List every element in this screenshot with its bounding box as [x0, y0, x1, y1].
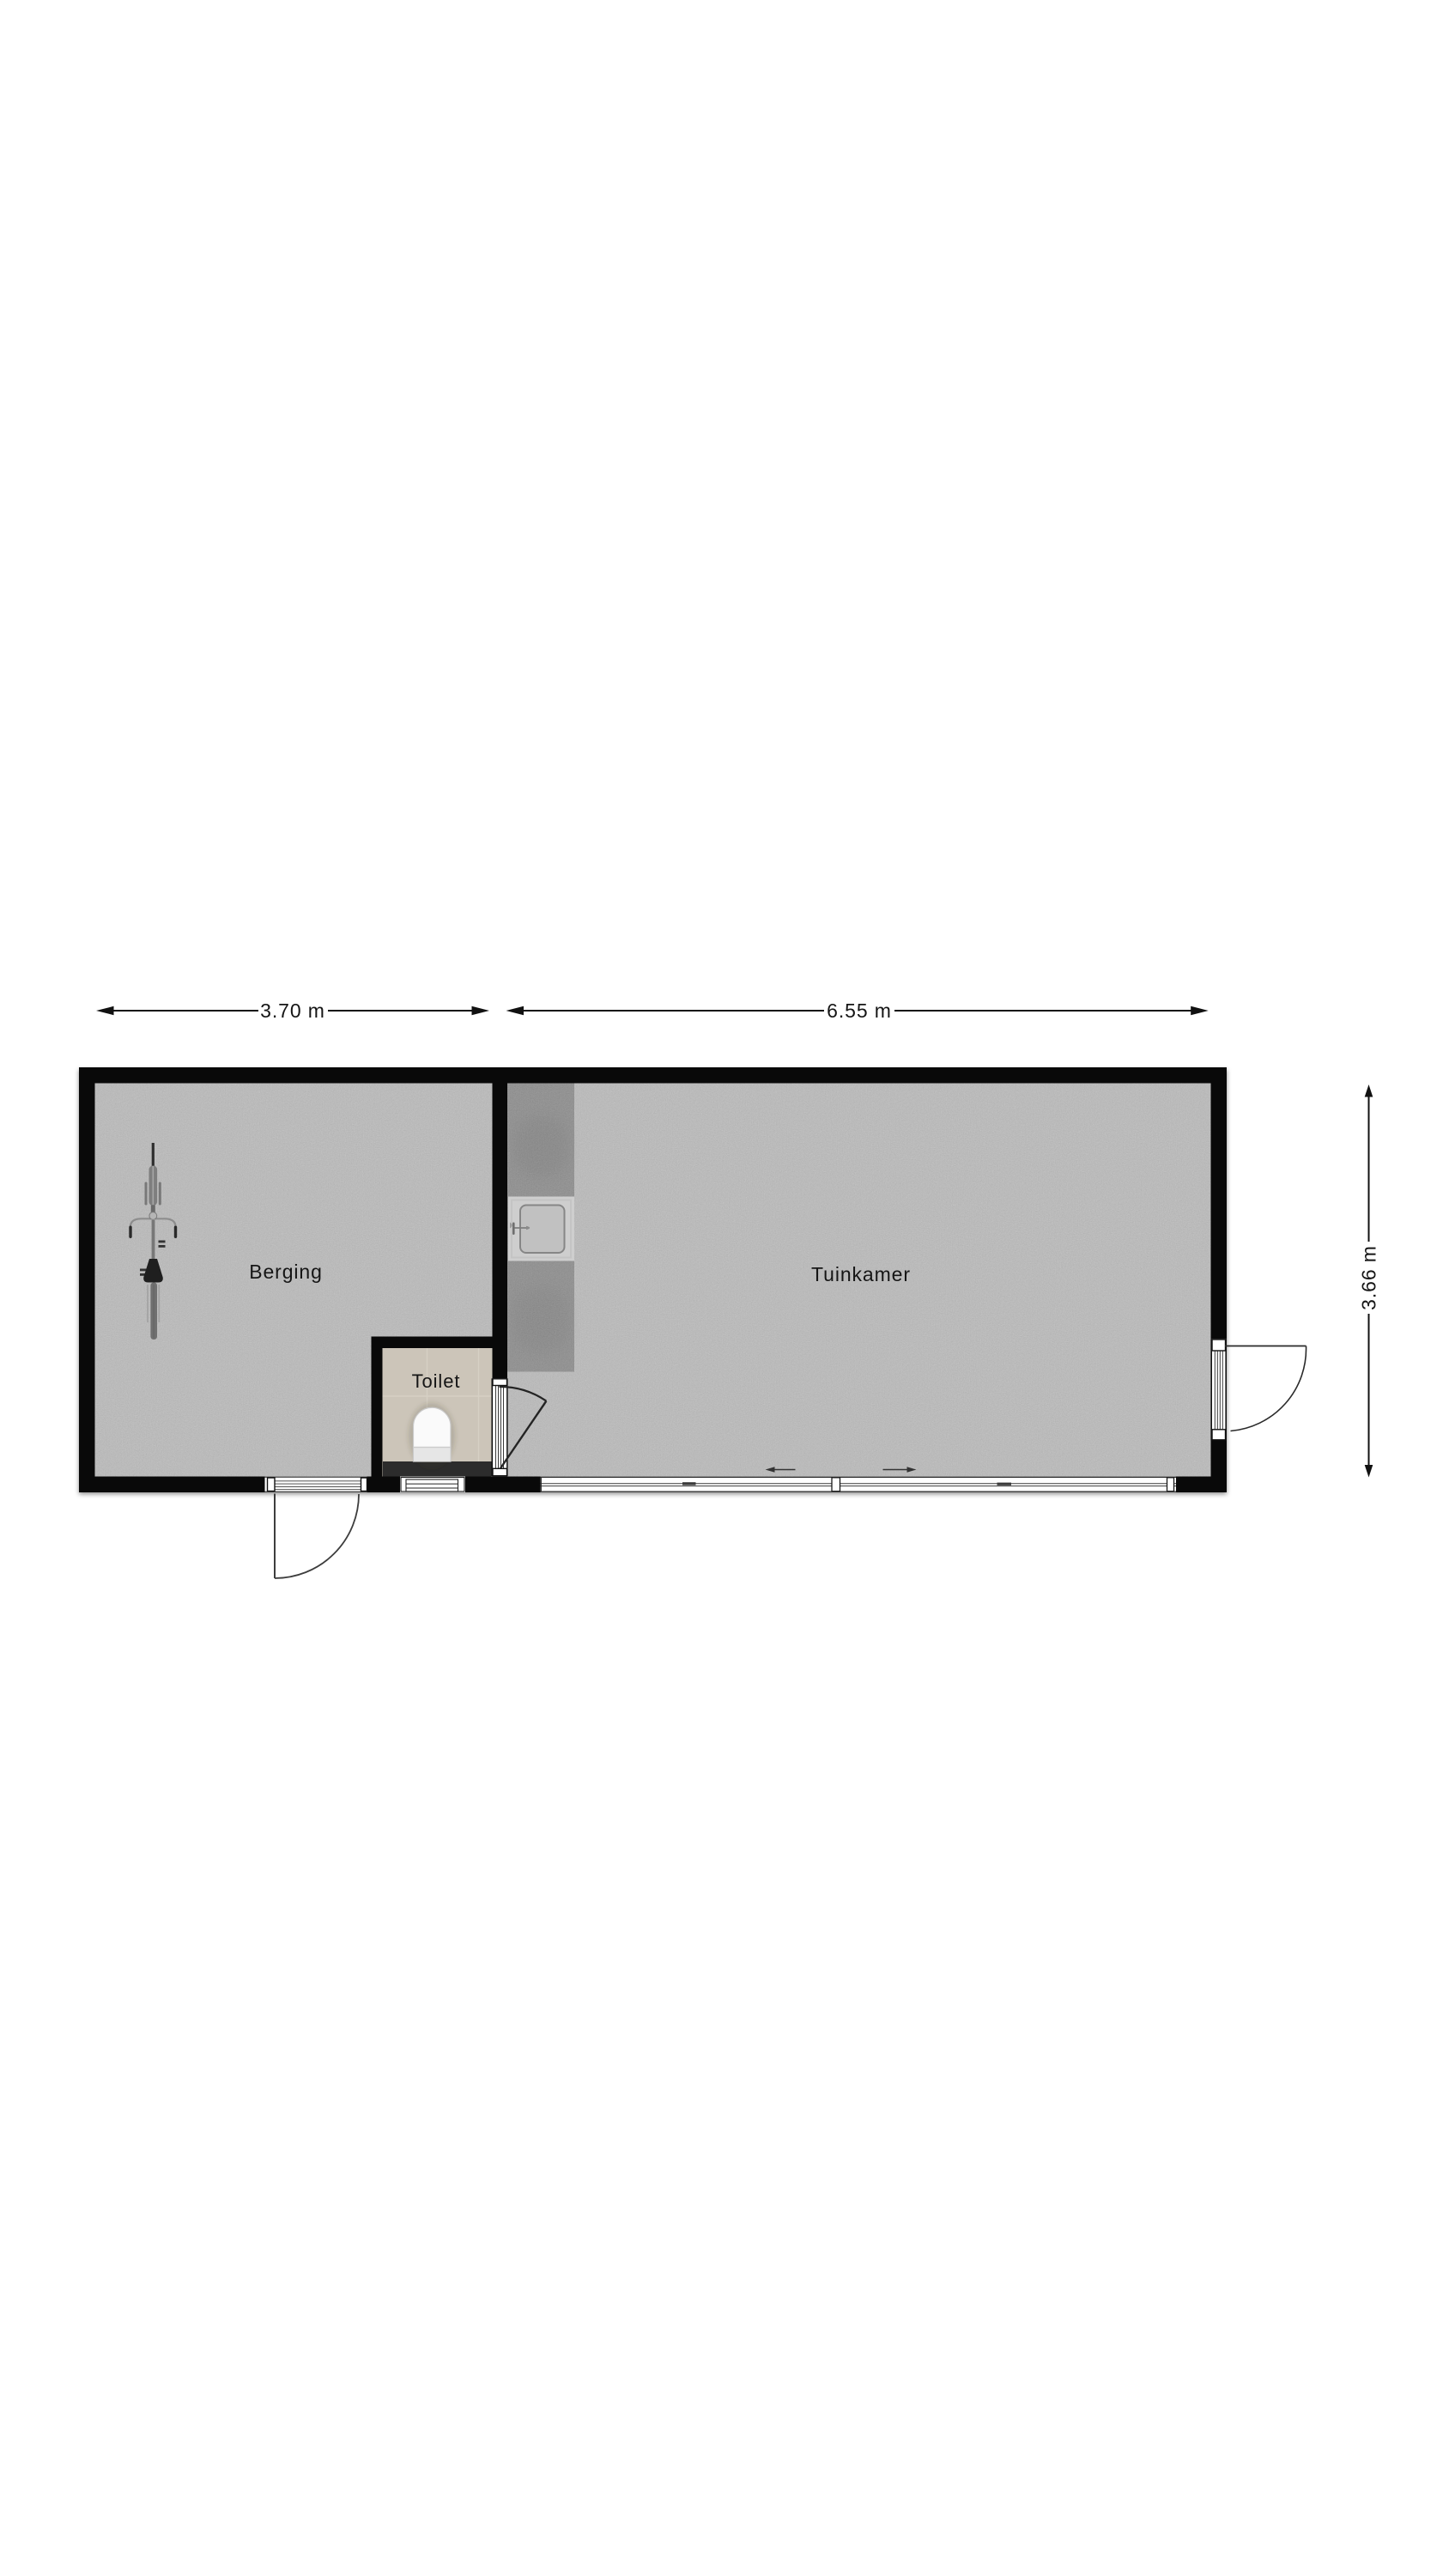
svg-text:Tuinkamer: Tuinkamer [811, 1263, 911, 1285]
svg-text:3.70 m: 3.70 m [260, 999, 325, 1022]
svg-text:3.66 m: 3.66 m [1358, 1245, 1380, 1310]
svg-text:Toilet: Toilet [412, 1370, 461, 1392]
svg-text:Berging: Berging [249, 1261, 323, 1283]
svg-text:6.55 m: 6.55 m [827, 999, 892, 1022]
